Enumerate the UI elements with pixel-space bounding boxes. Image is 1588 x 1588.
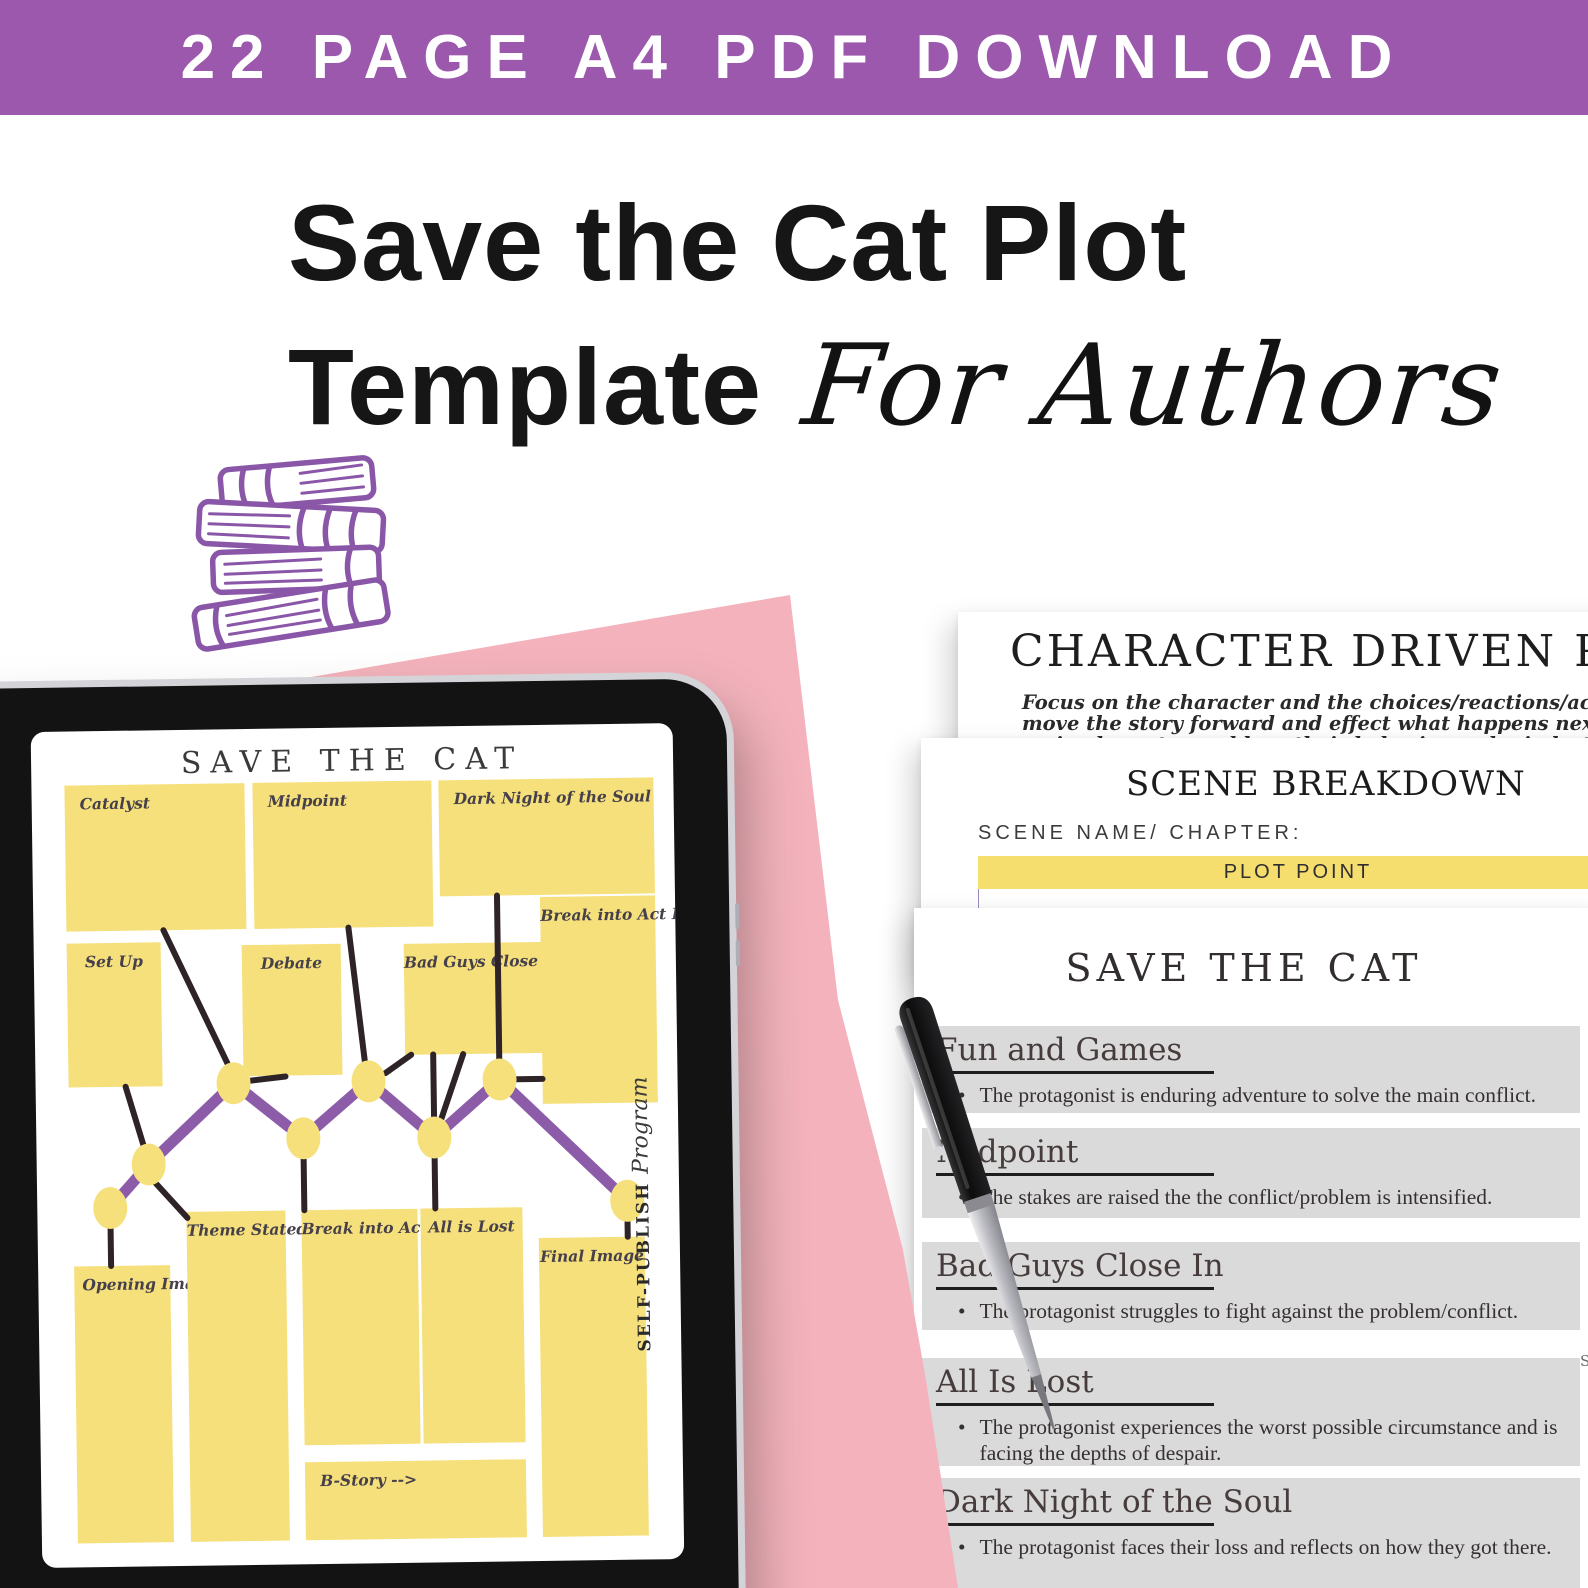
pen — [0, 0, 1588, 1588]
promo-image: 22 PAGE A4 PDF DOWNLOAD Save the Cat Plo… — [0, 0, 1588, 1588]
